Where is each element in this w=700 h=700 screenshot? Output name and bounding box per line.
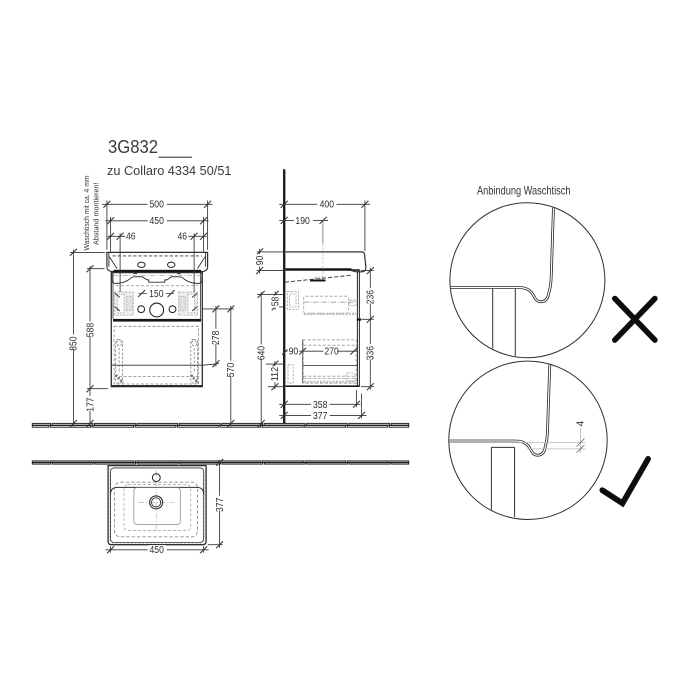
svg-text:358: 358 [313, 400, 328, 411]
svg-text:177: 177 [85, 397, 96, 412]
svg-text:588: 588 [85, 322, 96, 337]
svg-text:270: 270 [324, 347, 339, 358]
svg-text:4: 4 [575, 421, 587, 427]
svg-text:570: 570 [226, 362, 237, 377]
svg-text:850: 850 [69, 336, 80, 351]
svg-text:150: 150 [149, 289, 164, 300]
svg-text:112: 112 [270, 367, 281, 382]
svg-text:500: 500 [150, 200, 165, 211]
svg-text:90: 90 [255, 255, 266, 265]
svg-text:Anbindung Waschtisch: Anbindung Waschtisch [477, 183, 571, 197]
svg-text:90: 90 [289, 347, 299, 358]
svg-text:377: 377 [313, 411, 328, 422]
svg-text:Abstand montieren!: Abstand montieren! [92, 183, 101, 246]
svg-text:zu Collaro 4334 50/51: zu Collaro 4334 50/51 [107, 163, 232, 178]
svg-text:46: 46 [126, 232, 136, 243]
svg-text:190: 190 [295, 216, 310, 227]
svg-text:640: 640 [257, 346, 268, 361]
svg-text:Waschtisch mit ca. 4 mm: Waschtisch mit ca. 4 mm [82, 176, 91, 251]
svg-text:236: 236 [366, 290, 377, 305]
svg-text:3G832: 3G832 [108, 136, 158, 157]
svg-text:58: 58 [271, 296, 282, 306]
svg-text:450: 450 [150, 216, 165, 227]
svg-text:400: 400 [320, 200, 335, 211]
svg-text:336: 336 [366, 346, 377, 361]
svg-text:46: 46 [178, 232, 188, 243]
svg-text:450: 450 [150, 545, 165, 556]
svg-text:278: 278 [211, 330, 222, 345]
svg-text:377: 377 [215, 497, 226, 512]
